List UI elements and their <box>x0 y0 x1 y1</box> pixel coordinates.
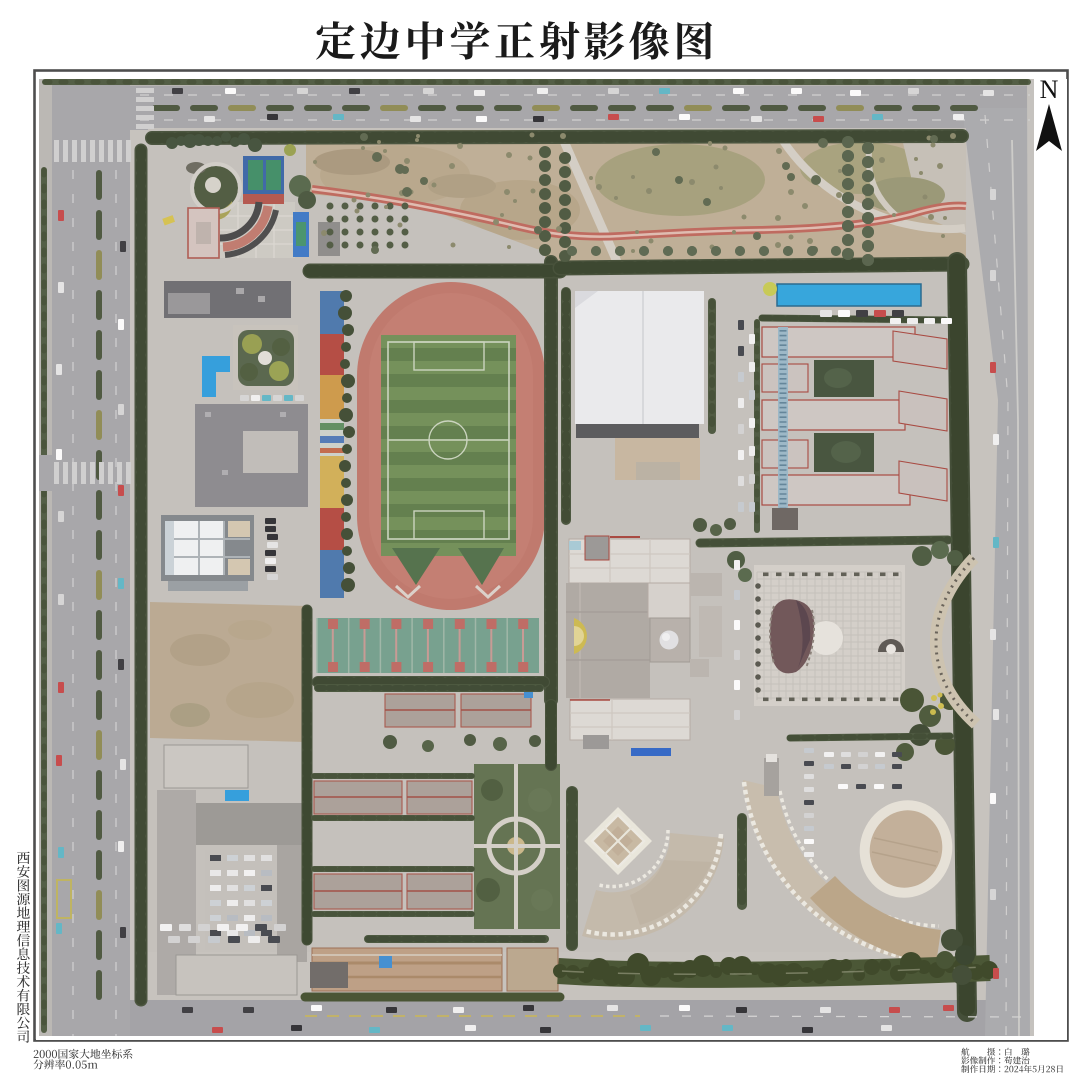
svg-text:N: N <box>1040 75 1059 104</box>
